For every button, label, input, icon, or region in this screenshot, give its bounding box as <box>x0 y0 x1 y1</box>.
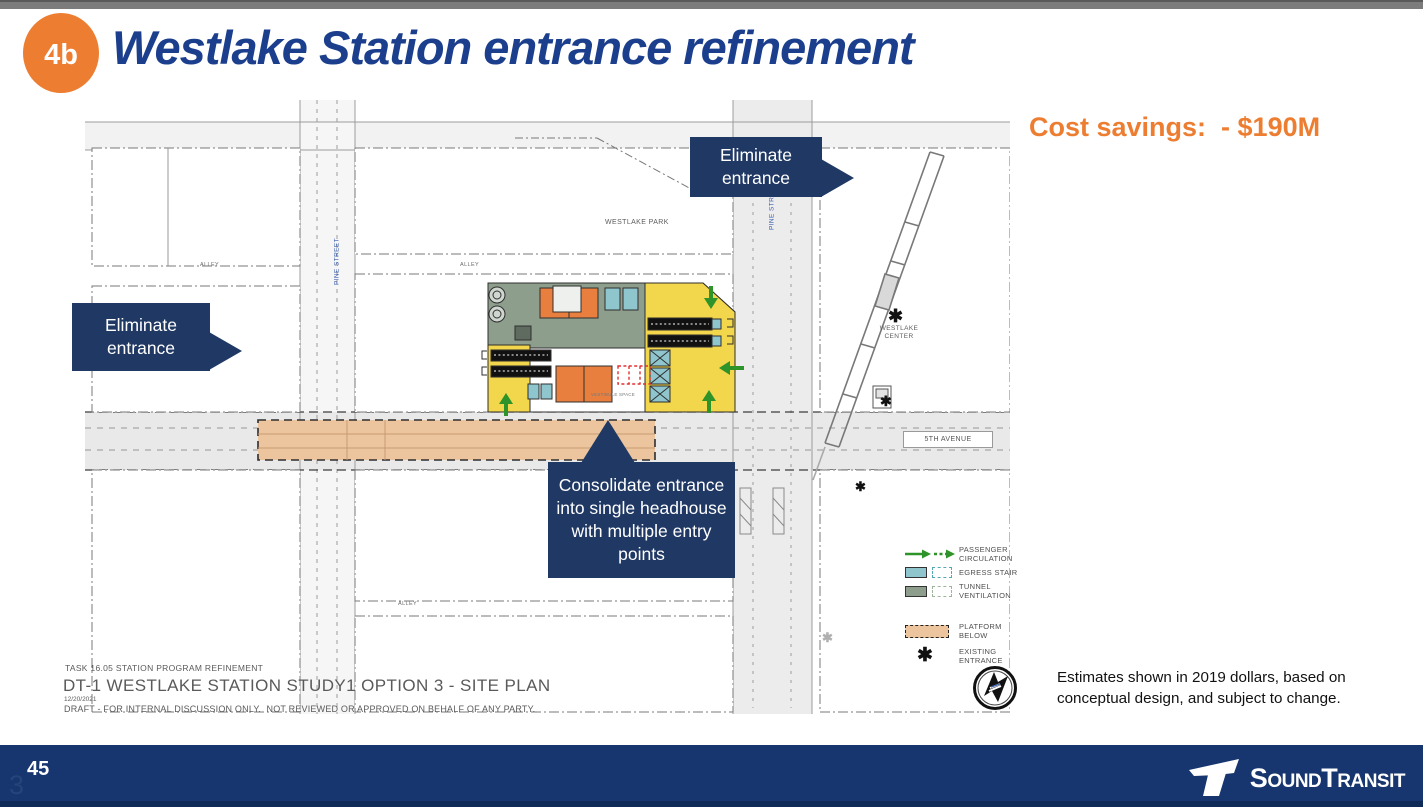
tunnel-ventilation-swatch <box>905 586 959 597</box>
drawing-date: 12/20/2021 <box>64 696 97 703</box>
plan-legend: PASSENGER CIRCULATION EGRESS STAIR TUNNE… <box>905 545 1027 671</box>
westlake-center-label: WESTLAKE CENTER <box>868 325 930 342</box>
callout-pointer <box>581 420 635 463</box>
drawing-task-line: TASK 16.05 STATION PROGRAM REFINEMENT <box>65 663 263 673</box>
fifth-avenue-label: 5TH AVENUE <box>903 431 993 448</box>
alley-label: ALLEY <box>200 262 219 268</box>
legend-label: TUNNEL VENTILATION <box>959 582 1027 600</box>
footer-bottom-strip <box>0 801 1423 807</box>
passenger-circulation-arrow-icon <box>905 549 959 559</box>
legend-row-existing-entrance: ✱ EXISTING ENTRANCE <box>905 644 1027 667</box>
logo-word-transit: Transit <box>1321 763 1405 794</box>
vestibule-space-label: VESTIBULE SPACE <box>591 392 635 397</box>
page-number: 45 <box>27 758 49 781</box>
legend-label: EGRESS STAIR <box>959 568 1017 577</box>
legend-row-egress-stair: EGRESS STAIR <box>905 567 1027 578</box>
ghost-page-number: 3 <box>9 770 24 801</box>
egress-stair-swatch <box>905 567 959 578</box>
callout-text: Eliminate entrance <box>80 314 202 360</box>
legend-row-passenger-circulation: PASSENGER CIRCULATION <box>905 545 1027 563</box>
sound-transit-wordmark: SoundTransit <box>1250 763 1405 794</box>
logo-word-sound: Sound <box>1250 763 1321 794</box>
existing-entrance-asterisk: ✱ <box>855 479 866 495</box>
page-title: Westlake Station entrance refinement <box>112 20 914 75</box>
existing-entrance-asterisk-icon: ✱ <box>905 644 959 667</box>
callout-text: Eliminate entrance <box>698 144 814 190</box>
existing-entrance-asterisk: ✱ <box>822 630 833 646</box>
estimates-disclaimer: Estimates shown in 2019 dollars, based o… <box>1057 668 1409 710</box>
existing-entrance-asterisk: ✱ <box>888 306 903 327</box>
footer-bar: 3 45 SoundTransit <box>0 745 1423 807</box>
cost-savings-text: Cost savings: - $190M <box>1029 112 1320 143</box>
existing-entrance-asterisk: ✱ <box>880 393 892 410</box>
window-top-bar <box>0 0 1423 9</box>
site-plan-drawing <box>85 98 1010 722</box>
legend-row-tunnel-ventilation: TUNNEL VENTILATION <box>905 582 1027 600</box>
sound-transit-logo: SoundTransit <box>1186 754 1405 798</box>
westlake-park-label: WESTLAKE PARK <box>605 219 669 226</box>
callout-consolidate-entrance: Consolidate entrance into single headhou… <box>548 462 735 578</box>
slide-number-badge: 4b <box>23 13 99 93</box>
callout-eliminate-entrance-left: Eliminate entrance <box>72 303 210 371</box>
legend-row-platform-below: PLATFORM BELOW <box>905 622 1027 640</box>
slide: 4b Westlake Station entrance refinement … <box>0 0 1423 807</box>
legend-label: EXISTING ENTRANCE <box>959 647 1027 665</box>
legend-label: PLATFORM BELOW <box>959 622 1027 640</box>
callout-pointer <box>821 159 854 197</box>
alley-label: ALLEY <box>398 601 417 607</box>
callout-text: Consolidate entrance into single headhou… <box>556 474 727 566</box>
drawing-title: DT-1 WESTLAKE STATION STUDY1 OPTION 3 - … <box>63 676 551 696</box>
north-arrow-icon <box>972 665 1018 711</box>
alley-label: ALLEY <box>460 262 479 268</box>
pine-street-label: PINE STREET <box>334 230 341 294</box>
callout-pointer <box>209 332 242 370</box>
slide-number-badge-label: 4b <box>44 39 78 72</box>
sound-transit-t-mark-icon <box>1186 754 1242 798</box>
legend-label: PASSENGER CIRCULATION <box>959 545 1027 563</box>
drawing-draft-note: DRAFT - FOR INTERNAL DISCUSSION ONLY. NO… <box>64 704 535 714</box>
platform-below-swatch <box>905 625 959 638</box>
callout-eliminate-entrance-top: Eliminate entrance <box>690 137 822 197</box>
